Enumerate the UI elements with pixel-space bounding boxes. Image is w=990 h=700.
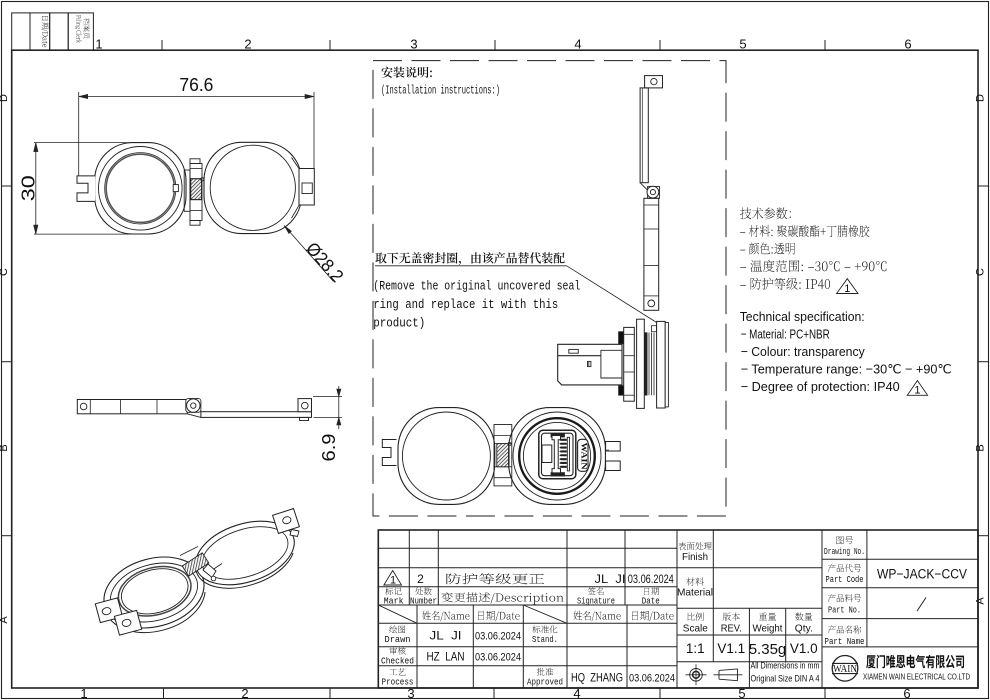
svg-text:Process: Process	[382, 676, 414, 687]
svg-text:Original Size DIN A 4: Original Size DIN A 4	[751, 674, 820, 684]
svg-text:6.9: 6.9	[319, 434, 339, 462]
svg-text:03.06.2024: 03.06.2024	[629, 673, 675, 685]
svg-text:1: 1	[80, 686, 87, 700]
svg-text:2: 2	[241, 686, 248, 700]
svg-text:product): product)	[373, 315, 425, 330]
svg-text:Date: Date	[642, 596, 660, 606]
svg-text:Approved: Approved	[527, 676, 563, 687]
svg-text:Signature: Signature	[577, 596, 615, 606]
svg-text:Checked: Checked	[381, 655, 414, 666]
svg-text:03.06.2024: 03.06.2024	[475, 652, 521, 664]
svg-text:ring and replace it with this: ring and replace it with this	[373, 297, 558, 312]
svg-text:WP−JACK−CCV: WP−JACK−CCV	[877, 567, 967, 582]
svg-text:1:1: 1:1	[686, 641, 705, 656]
svg-text:JL JI: JL JI	[595, 574, 626, 586]
svg-text:B: B	[975, 444, 987, 451]
svg-text:03.06.2024: 03.06.2024	[628, 574, 674, 586]
svg-text:5: 5	[739, 37, 746, 52]
svg-text:2: 2	[244, 37, 251, 52]
svg-text:A: A	[0, 616, 10, 624]
svg-text:6: 6	[904, 37, 911, 52]
svg-text:Qty.: Qty.	[795, 623, 813, 635]
svg-text:1: 1	[844, 283, 850, 295]
svg-text:A: A	[975, 597, 987, 605]
svg-text:WAIN: WAIN	[833, 664, 857, 675]
svg-text:5.35g: 5.35g	[749, 641, 787, 658]
svg-text:1: 1	[390, 575, 396, 587]
svg-text:Part Code: Part Code	[826, 574, 864, 585]
svg-text:Part Name: Part Name	[825, 636, 865, 647]
svg-text:WAIN: WAIN	[580, 443, 589, 470]
svg-text:C: C	[975, 268, 987, 276]
svg-text:4: 4	[574, 37, 581, 52]
svg-text:V1.0: V1.0	[790, 641, 818, 656]
svg-text:C: C	[0, 268, 10, 276]
svg-text:− Colour: transparency: − Colour: transparency	[741, 344, 865, 359]
svg-text:76.6: 76.6	[179, 75, 213, 95]
svg-text:Part No.: Part No.	[828, 605, 861, 616]
svg-text:− Temperature range: −30℃ − +9: − Temperature range: −30℃ − +90℃	[741, 361, 952, 376]
svg-text:Finish: Finish	[682, 551, 708, 563]
svg-text:JL JI: JL JI	[430, 631, 462, 643]
svg-text:V1.1: V1.1	[717, 641, 745, 656]
svg-text:Drawn: Drawn	[385, 634, 411, 645]
svg-text:1: 1	[914, 385, 920, 397]
svg-text:B: B	[0, 444, 10, 451]
svg-text:Number: Number	[410, 596, 437, 606]
svg-text:XIAMEN WAIN ELECTRICAL CO.LTD: XIAMEN WAIN ELECTRICAL CO.LTD	[863, 672, 970, 681]
svg-text:30: 30	[19, 175, 39, 201]
svg-text:Weight: Weight	[753, 623, 783, 635]
svg-text:(Installation instructions:): (Installation instructions:)	[381, 84, 500, 98]
svg-text:1: 1	[95, 37, 102, 52]
svg-text:2: 2	[417, 572, 424, 586]
svg-text:Mark: Mark	[384, 596, 404, 606]
svg-text:Scale: Scale	[683, 623, 708, 635]
svg-text:D: D	[0, 94, 10, 102]
svg-text:3: 3	[410, 37, 417, 52]
svg-text:Stand.: Stand.	[532, 634, 558, 645]
svg-text:REV.: REV.	[721, 623, 742, 635]
svg-text:03.06.2024: 03.06.2024	[475, 631, 521, 643]
svg-text:Technical specification:: Technical specification:	[740, 309, 865, 324]
svg-text:− Material: PC+NBR: − Material: PC+NBR	[741, 326, 830, 341]
svg-text:All Dimensions in mm: All Dimensions in mm	[751, 661, 820, 671]
svg-text:HZ LAN: HZ LAN	[427, 652, 465, 664]
svg-text:Drawing No.: Drawing No.	[824, 546, 865, 557]
svg-text:Material: Material	[677, 587, 713, 599]
svg-text:D: D	[975, 94, 987, 102]
svg-text:− Degree of protection: IP40: − Degree of protection: IP40	[741, 379, 900, 394]
svg-text:HQ ZHANG: HQ ZHANG	[571, 673, 623, 685]
svg-text:(Remove the original uncovered: (Remove the original uncovered seal	[373, 279, 580, 294]
